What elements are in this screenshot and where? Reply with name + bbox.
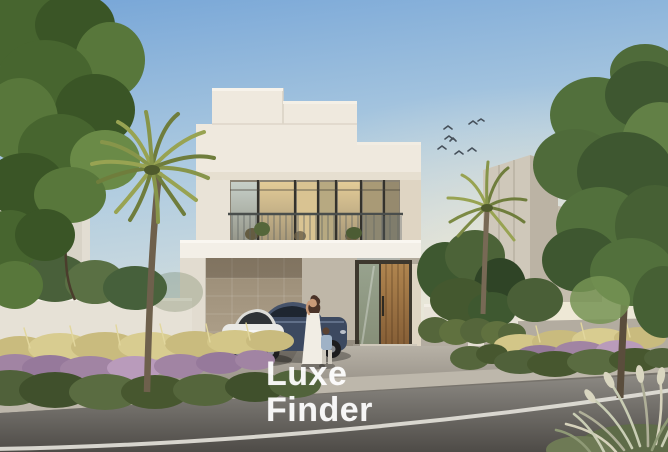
entrance-door <box>353 260 417 349</box>
villa-left-pier <box>196 180 230 242</box>
villa-render-image: Luxe Finder <box>0 0 668 452</box>
balcony-plant <box>254 222 270 236</box>
scene-canvas <box>0 0 668 452</box>
